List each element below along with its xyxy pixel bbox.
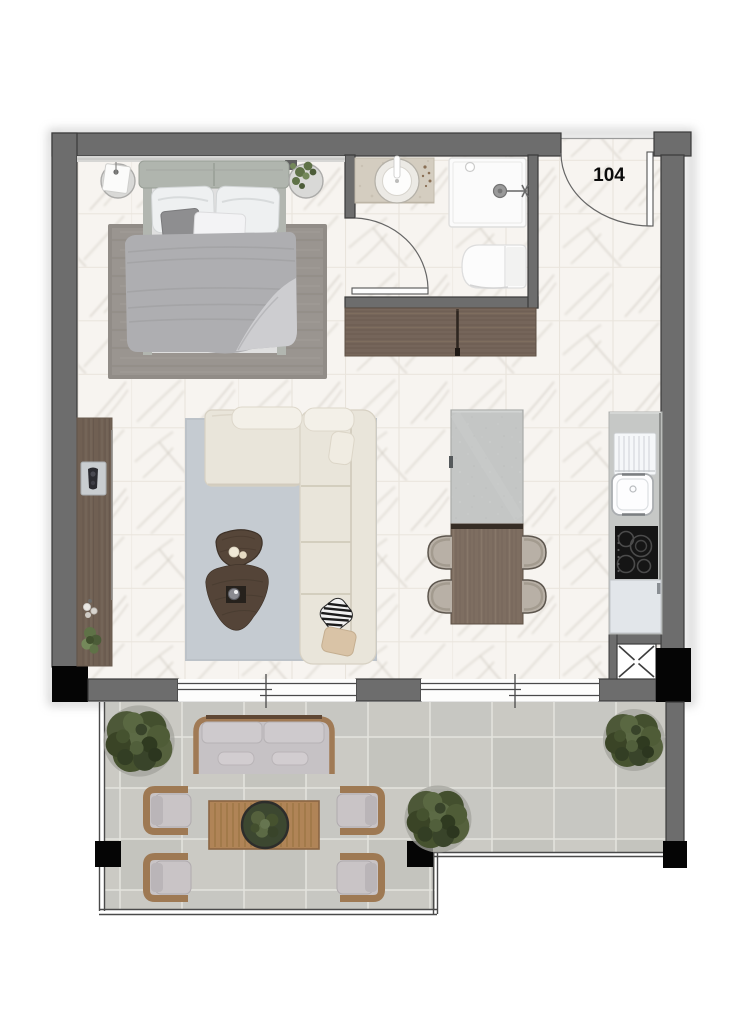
svg-text:104: 104 — [593, 165, 625, 186]
